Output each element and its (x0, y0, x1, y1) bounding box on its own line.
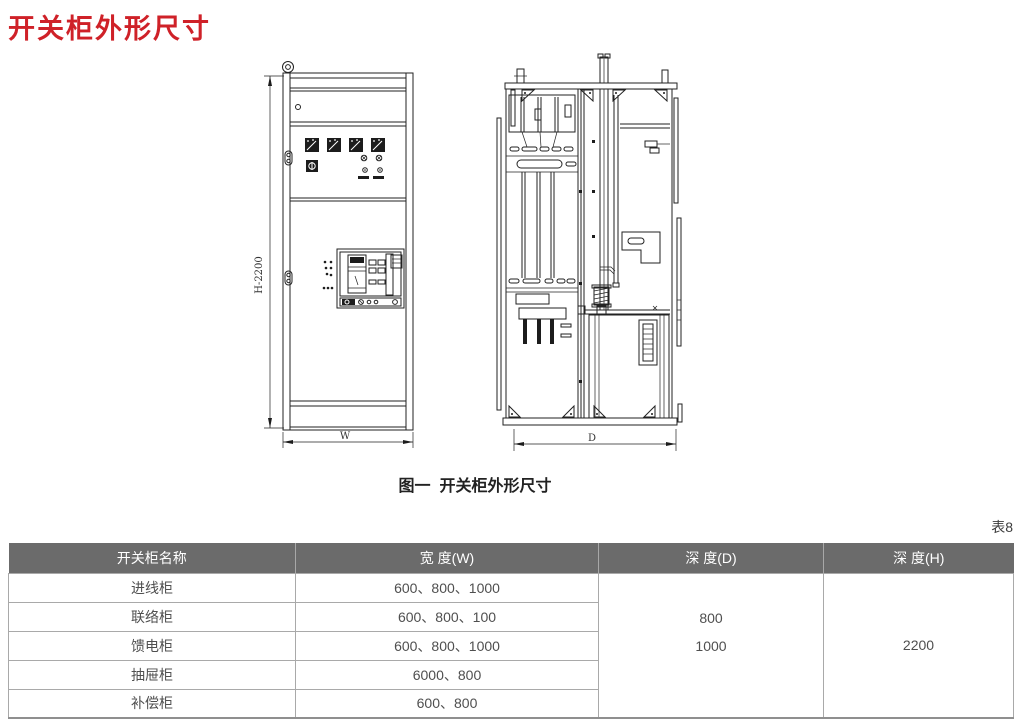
indicator-lamp-icon (358, 155, 384, 179)
cell-cabinet-name: 进线柜 (9, 573, 296, 602)
lifting-lug-icon (662, 70, 668, 83)
depth-d-value: 800 (599, 604, 823, 632)
breaker-unit (337, 249, 404, 308)
door-dots (323, 261, 334, 290)
meter-icon (327, 138, 341, 152)
width-dimension: W (283, 431, 413, 448)
width-dimension-label: W (340, 431, 351, 442)
table-label: 表8 (940, 517, 1013, 537)
cell-cabinet-name: 补偿柜 (9, 689, 296, 718)
cell-width: 600、800、1000 (296, 631, 599, 660)
height-dimension: H-2200 (254, 76, 284, 428)
meter-icon (371, 138, 385, 152)
hinge-icon (285, 271, 292, 285)
switch-icon (306, 160, 318, 172)
figure-drawing: H-2200 (240, 50, 700, 462)
dimension-table: 开关柜名称 宽 度(W) 深 度(D) 深 度(H) 进线柜 600、800、1… (8, 543, 1014, 719)
column-header-depth-h: 深 度(H) (824, 543, 1014, 573)
cell-depth-h: 2200 (824, 573, 1014, 718)
depth-dimension-label: D (588, 433, 596, 444)
page-title: 开关柜外形尺寸 (8, 7, 211, 46)
column-header-cabinet-name: 开关柜名称 (9, 543, 296, 573)
meter-icon (349, 138, 363, 152)
column-header-width: 宽 度(W) (296, 543, 599, 573)
terminal-strip (639, 320, 657, 365)
cell-width: 6000、800 (296, 660, 599, 689)
cell-width: 600、800、1000 (296, 573, 599, 602)
meter-icon (305, 138, 319, 152)
cell-width: 600、800、100 (296, 602, 599, 631)
figure-caption: 图一 开关柜外形尺寸 (330, 472, 620, 496)
lifting-eye-icon (283, 62, 294, 73)
cell-cabinet-name: 联络柜 (9, 602, 296, 631)
depth-d-value: 1000 (599, 632, 823, 660)
hinge-icon (285, 151, 292, 165)
table-header-row: 开关柜名称 宽 度(W) 深 度(D) 深 度(H) (9, 543, 1014, 573)
column-header-depth-d: 深 度(D) (599, 543, 824, 573)
front-view-cabinet (283, 62, 414, 431)
cell-cabinet-name: 馈电柜 (9, 631, 296, 660)
height-dimension-label: H-2200 (254, 256, 265, 294)
depth-dimension: D (514, 429, 676, 451)
cell-depth-d: 800 1000 (599, 573, 824, 718)
cell-cabinet-name: 抽屉柜 (9, 660, 296, 689)
cell-width: 600、800 (296, 689, 599, 718)
table-row: 进线柜 600、800、1000 800 1000 2200 (9, 573, 1014, 602)
side-view-structure (497, 54, 682, 425)
